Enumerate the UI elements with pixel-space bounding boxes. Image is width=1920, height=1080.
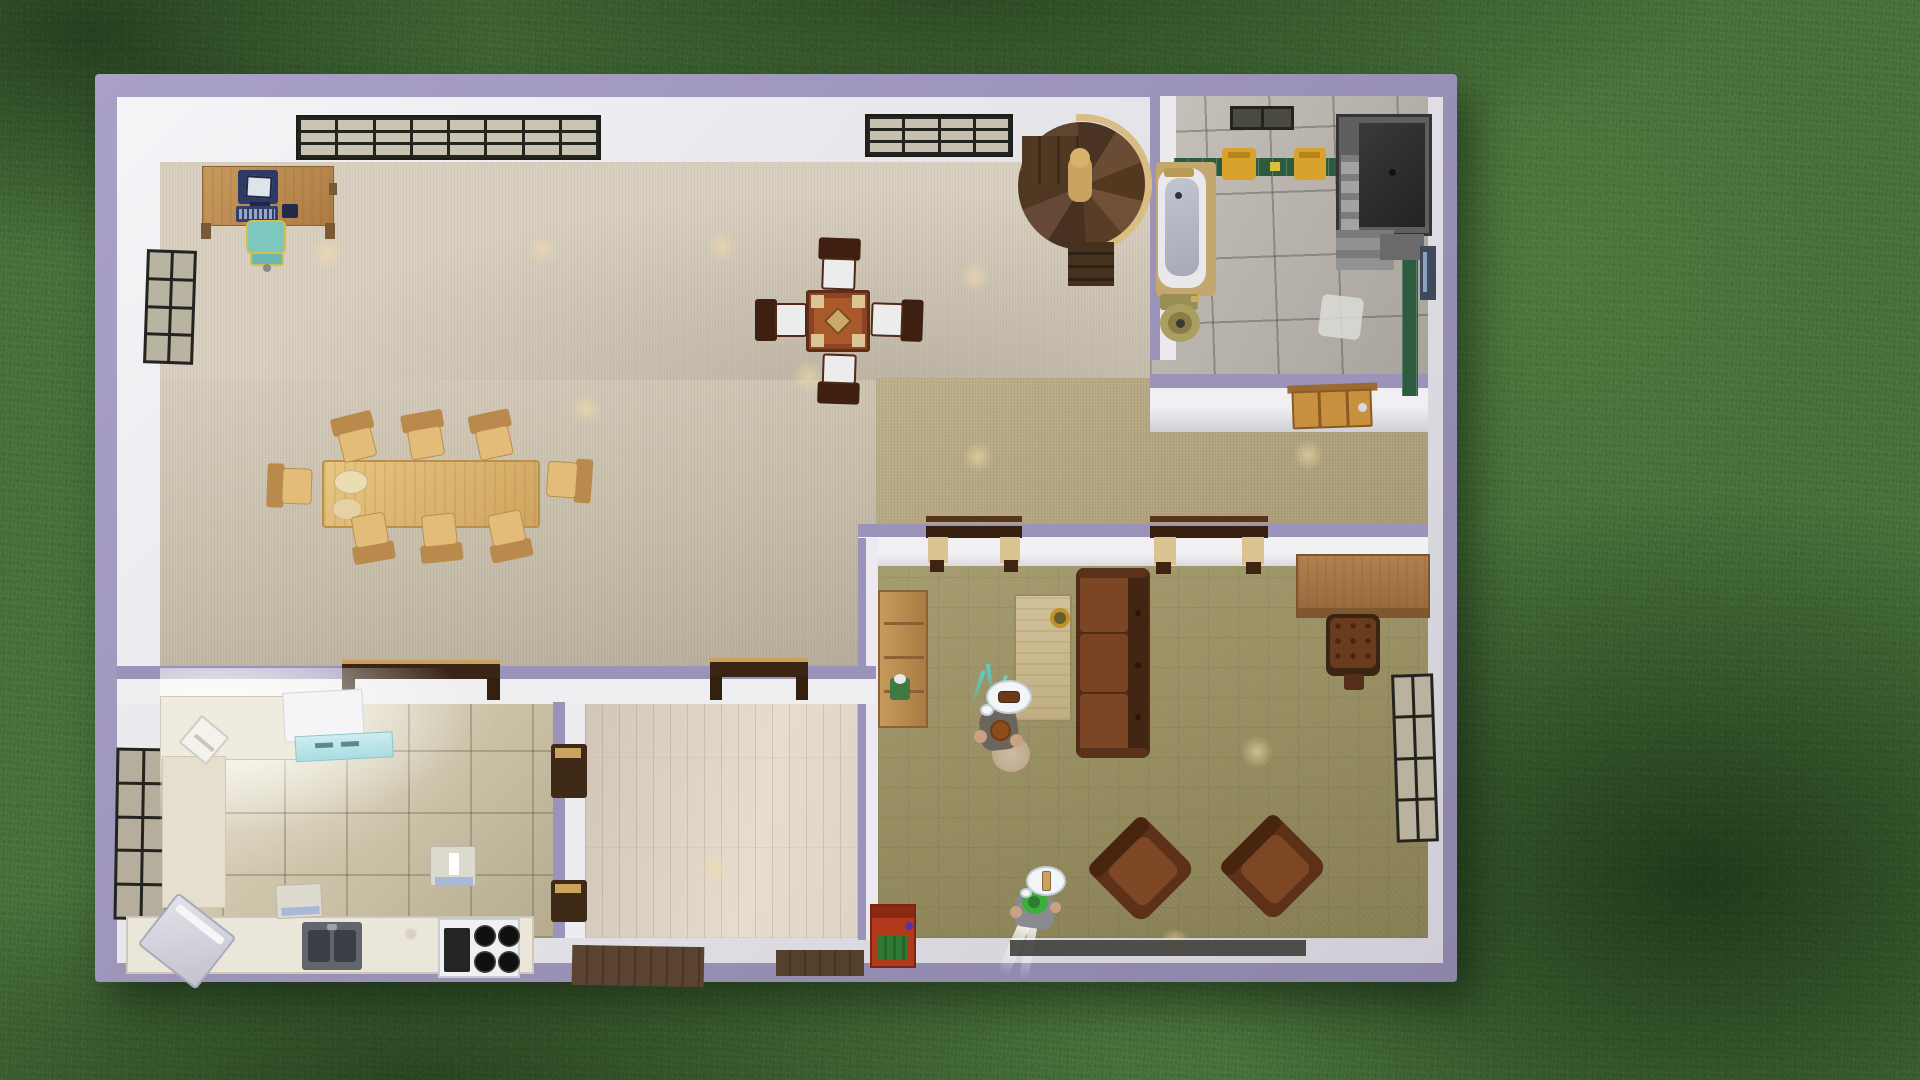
sofa[interactable] <box>1076 568 1150 758</box>
window-pane <box>119 751 142 782</box>
window-pane <box>173 253 194 278</box>
kitchen-counter[interactable] <box>160 696 302 760</box>
window-pane <box>1264 109 1292 127</box>
living-room-desk[interactable] <box>1296 554 1430 618</box>
bubble-food-icon <box>998 691 1020 703</box>
kitchen-side-doorframe <box>551 880 587 922</box>
craft-kit <box>878 936 908 960</box>
dining-chair-light[interactable] <box>344 506 398 565</box>
window-pane <box>1417 759 1435 798</box>
dining-chair-dark[interactable] <box>815 237 863 295</box>
chair-cushion <box>822 353 857 384</box>
chair-seat <box>421 512 458 547</box>
window-pane <box>376 133 410 143</box>
stair-exit-steps <box>1068 242 1114 286</box>
window-pane <box>525 145 559 155</box>
window-pane <box>905 119 937 128</box>
box-line <box>194 734 215 752</box>
dining-chair-light[interactable] <box>542 453 593 506</box>
sofa-arm <box>1078 748 1148 758</box>
activity-table[interactable] <box>870 904 916 968</box>
window-pane <box>118 784 141 815</box>
living-room-wall-window <box>926 524 1022 574</box>
light-pool <box>959 262 991 292</box>
window-pane <box>413 120 447 130</box>
floor-vent <box>430 846 476 886</box>
window-pane <box>338 133 372 143</box>
window-pane <box>562 120 596 130</box>
sofa-cushion <box>1080 576 1128 632</box>
window-sill <box>926 516 1022 522</box>
thought-bubble-blob <box>980 704 994 716</box>
sofa-cushion <box>1080 634 1128 692</box>
window-pane <box>147 308 168 333</box>
window-north-large <box>296 115 601 160</box>
sparkle-effect <box>971 670 986 705</box>
chair-backrest <box>755 299 777 341</box>
window-pane <box>562 133 596 143</box>
window-west-upper <box>143 249 197 365</box>
window-pane <box>338 120 372 130</box>
sofa-arm <box>1078 568 1148 578</box>
sim-head <box>990 720 1011 741</box>
living-room-wall-window <box>1150 524 1268 576</box>
window-pane <box>301 145 335 155</box>
window-pane <box>338 145 372 155</box>
window-pane <box>1394 677 1412 716</box>
porch-planks <box>572 945 705 987</box>
desk-chair[interactable] <box>242 218 292 266</box>
burner <box>498 925 520 947</box>
light-pool <box>962 442 994 472</box>
toilet-flush <box>1191 296 1199 302</box>
bubble-door-icon <box>1042 871 1051 891</box>
window-pane <box>376 120 410 130</box>
stove[interactable] <box>438 918 520 978</box>
chair-cushion <box>870 302 903 337</box>
foyer-floor <box>585 668 876 938</box>
light-pool <box>1240 736 1274 768</box>
chair-seat <box>337 426 377 463</box>
window-pane <box>376 145 410 155</box>
chair-seat <box>407 425 446 460</box>
chair-seat <box>475 425 514 461</box>
shower-ledge <box>1336 230 1394 270</box>
chair-tufted-seat <box>1330 618 1376 668</box>
window-pane <box>1414 676 1432 715</box>
towel-rack <box>1222 148 1256 180</box>
living-room-left-wall <box>858 538 878 940</box>
light-pool <box>569 394 603 424</box>
arch-beam <box>710 662 808 677</box>
dining-chair-light[interactable] <box>465 408 520 466</box>
refrigerator[interactable] <box>282 687 396 763</box>
window-pane <box>146 335 167 360</box>
window-pane <box>525 133 559 143</box>
wall-mirror[interactable] <box>1420 246 1436 300</box>
curtain-foot <box>1004 560 1018 572</box>
sim-adult[interactable] <box>966 664 1046 774</box>
burner <box>474 951 496 973</box>
shelf-cup <box>894 674 906 684</box>
shower-drain <box>1389 169 1396 176</box>
arch-foot <box>796 676 808 700</box>
window-pane <box>450 145 484 155</box>
stove-panel <box>444 928 470 972</box>
window-pane <box>905 131 937 140</box>
window-pane <box>487 133 521 143</box>
porch-planks <box>776 950 864 976</box>
fridge-slot <box>315 742 333 748</box>
sim-arm <box>1050 902 1061 913</box>
chair-seat <box>281 468 312 505</box>
burner <box>498 951 520 973</box>
window-pane <box>1233 109 1261 127</box>
desktop-computer[interactable] <box>238 168 284 210</box>
desk-leg <box>201 223 211 239</box>
doorframe-trim <box>555 884 581 893</box>
sink-faucet <box>327 924 337 930</box>
window-pane <box>976 143 1008 152</box>
towel-fold <box>1228 152 1250 158</box>
foyer-archway <box>710 662 808 702</box>
window-pane <box>413 145 447 155</box>
window-pane <box>301 133 335 143</box>
curtain-foot <box>1156 562 1171 574</box>
kitchen-counter[interactable] <box>162 756 226 908</box>
curtain <box>1154 537 1176 565</box>
bath-mat <box>1318 294 1365 341</box>
chair-seat <box>546 461 578 499</box>
window-pane <box>976 119 1008 128</box>
toilet[interactable] <box>1158 294 1202 342</box>
window-pane <box>149 252 170 277</box>
thought-bubble-blob <box>1020 888 1032 898</box>
dining-chair-dark[interactable] <box>815 349 863 405</box>
window-pane <box>870 143 902 152</box>
soap-item <box>1270 162 1280 171</box>
floor-vent <box>275 883 323 919</box>
window-pane <box>941 119 973 128</box>
towel-rack <box>1294 148 1326 180</box>
vent-stripe <box>435 877 473 885</box>
inlay-corner <box>811 334 824 347</box>
window-pane <box>525 120 559 130</box>
window-pane <box>450 133 484 143</box>
window-pane <box>1396 718 1414 757</box>
table-edge <box>872 906 914 918</box>
desk-leg <box>325 223 335 239</box>
window-pane <box>941 143 973 152</box>
toilet-hole <box>1176 319 1185 328</box>
bathtub[interactable] <box>1158 168 1206 288</box>
window-pane <box>117 886 140 917</box>
fridge-slot <box>341 741 359 747</box>
vent-slot <box>449 853 459 875</box>
window-pane <box>562 145 596 155</box>
arch-foot <box>487 678 500 700</box>
kitchen-sink[interactable] <box>302 922 362 970</box>
inlay-corner <box>852 334 865 347</box>
sink-basin <box>334 930 356 962</box>
craft-knob <box>905 922 913 930</box>
light-pool <box>309 237 345 271</box>
window-pane <box>170 336 191 361</box>
spiral-staircase[interactable] <box>1012 112 1152 260</box>
chair-backrest <box>817 381 860 404</box>
light-pool <box>527 236 559 264</box>
window-pane <box>976 131 1008 140</box>
sofa-button <box>1135 662 1141 668</box>
window-bathroom <box>1230 106 1294 130</box>
shelf-line <box>884 656 924 659</box>
shelf-line <box>884 622 924 625</box>
window-pane <box>905 143 937 152</box>
stair-pole-top <box>1070 148 1090 168</box>
chair-seat <box>246 220 286 254</box>
curtain-foot <box>930 560 944 572</box>
wall-base-shadow <box>1010 940 1306 956</box>
chair-stem <box>1344 674 1364 690</box>
towel-fold <box>1299 152 1320 158</box>
window-pane <box>870 119 902 128</box>
mouse-pad <box>282 204 298 218</box>
chair-seat <box>350 511 389 548</box>
tub-drain <box>1175 192 1182 199</box>
vent-stripe <box>281 906 319 916</box>
light-pool <box>705 232 739 262</box>
window-pane <box>117 852 140 883</box>
shower-stall[interactable] <box>1336 114 1432 236</box>
tub-basin <box>1165 178 1199 276</box>
tub-faucet <box>1164 168 1194 177</box>
curtain <box>1242 537 1264 565</box>
sim-arm <box>974 730 987 743</box>
table-plate <box>334 470 368 494</box>
window-north-small <box>865 114 1013 157</box>
light-pool <box>700 852 732 884</box>
dining-chair-light[interactable] <box>266 460 316 512</box>
dining-chair-dark[interactable] <box>866 296 924 344</box>
kitchen-side-doorframe <box>551 744 587 798</box>
ledge-block <box>1380 234 1424 260</box>
window-pane <box>148 280 169 305</box>
window-pane <box>1399 801 1417 840</box>
window-pane <box>941 131 973 140</box>
sink-basin <box>308 930 330 962</box>
window-pane <box>172 281 193 306</box>
window-pane <box>1397 760 1415 799</box>
window-pane <box>870 131 902 140</box>
sim-arm <box>1010 906 1022 918</box>
window-pane <box>301 120 335 130</box>
sim-hair <box>1028 896 1040 908</box>
sofa-button <box>1135 714 1141 720</box>
bathroom-door[interactable] <box>1287 382 1379 431</box>
window-pane <box>171 309 192 334</box>
bar-sink-ring <box>1050 608 1070 628</box>
window-pane <box>413 133 447 143</box>
window-pane <box>487 120 521 130</box>
dining-table-square[interactable] <box>806 290 870 352</box>
dining-chair-dark[interactable] <box>755 297 811 343</box>
arch-foot <box>710 676 722 700</box>
house-lot-scene <box>0 0 1920 1080</box>
curtain-foot <box>1246 562 1261 574</box>
game-viewport <box>0 0 1920 1080</box>
inlay-corner <box>852 295 865 308</box>
desk-leg <box>329 183 337 195</box>
window-pane <box>1418 800 1436 839</box>
sim-arm <box>1010 734 1023 747</box>
light-pool <box>1292 440 1324 470</box>
window-pane <box>1415 718 1433 757</box>
inlay-corner <box>811 295 824 308</box>
window-pane <box>450 120 484 130</box>
window-pane <box>118 818 141 849</box>
dining-chair-light[interactable] <box>398 408 452 465</box>
office-chair[interactable] <box>1320 612 1386 690</box>
burner <box>474 925 496 947</box>
doorframe-trim <box>555 748 581 758</box>
monitor-screen <box>245 175 272 198</box>
window-pane <box>487 145 521 155</box>
chair-cushion <box>775 303 807 337</box>
chair-backrest <box>900 299 923 342</box>
sofa-button <box>1135 610 1141 616</box>
window-sill <box>1150 516 1268 522</box>
window-east-living <box>1391 673 1439 842</box>
sofa-cushion <box>1080 694 1128 750</box>
chair-post <box>263 264 271 272</box>
chair-cushion <box>821 257 856 290</box>
mirror-glint <box>1423 252 1427 292</box>
shower-steps <box>1341 155 1359 231</box>
dining-chair-light[interactable] <box>414 508 465 565</box>
bookshelf[interactable] <box>878 590 928 728</box>
